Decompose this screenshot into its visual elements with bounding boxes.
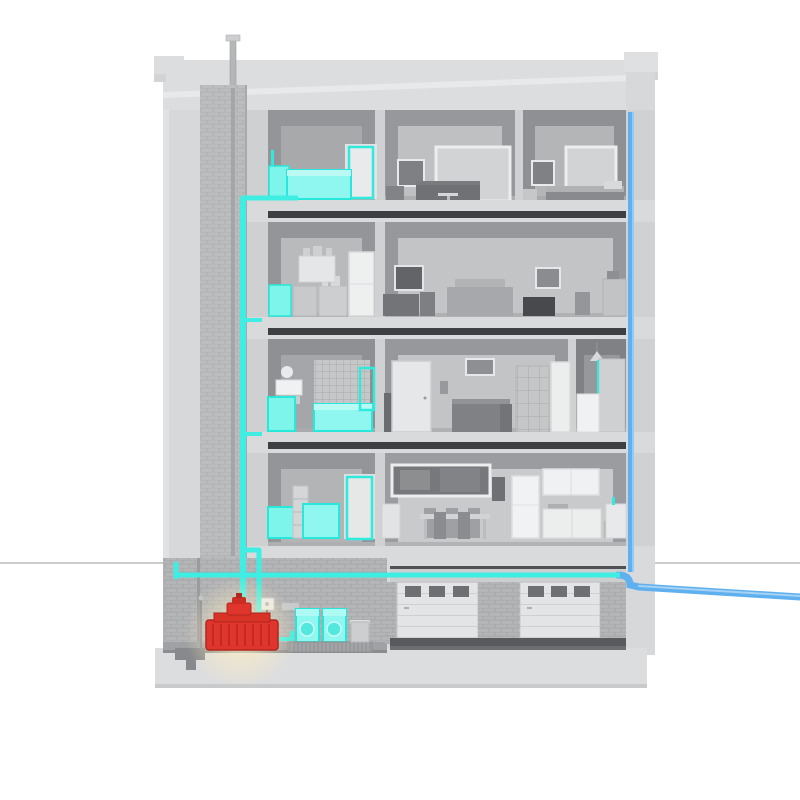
- f1-mural-patch-2: [440, 468, 480, 492]
- f2-armchair-cyan: [268, 397, 295, 431]
- f2-wall-lamp: [440, 381, 448, 394]
- f1-cooktop: [548, 504, 568, 509]
- parapet-left-step: [154, 74, 166, 82]
- parapet-left: [154, 56, 184, 74]
- f1-tap: [612, 497, 615, 505]
- garage-door-2-window-3: [574, 586, 590, 597]
- f1-mural-patch-1: [400, 470, 430, 490]
- f1-chair-front-1: [434, 512, 446, 539]
- ground-line-right: [646, 562, 800, 564]
- vent-pipe: [230, 40, 236, 88]
- machine-platform: [288, 642, 372, 652]
- garage-door-1-window-1: [405, 586, 421, 597]
- f1-shower: [347, 477, 372, 539]
- f2-door-knob: [424, 397, 427, 400]
- f2-lamp-ball: [281, 366, 293, 378]
- f1-vanity: [303, 504, 339, 538]
- f2-door: [392, 361, 431, 432]
- f3-sideboard: [523, 297, 555, 316]
- f3-sofa: [447, 287, 513, 316]
- vent-pipe-inside-shaft: [231, 88, 235, 556]
- pump-body: [206, 620, 278, 650]
- garage-pillar-mid: [478, 582, 520, 644]
- garage-door-1-window-3: [453, 586, 469, 597]
- washing-machine-1-door: [300, 622, 314, 636]
- f2-fridge: [577, 394, 599, 432]
- parapet-right: [624, 52, 658, 72]
- vent-pipe-cap: [226, 35, 240, 41]
- f2-tv: [276, 380, 302, 395]
- slab-4-recess: [268, 211, 626, 218]
- f4-bathtub-rim: [287, 170, 351, 176]
- washing-machine-2-panel: [323, 609, 346, 616]
- f3-jar-top-3: [326, 248, 332, 256]
- layer-lifting-station: [185, 577, 297, 689]
- f3-tv-desk: [383, 294, 419, 316]
- f2-bookshelf: [516, 366, 549, 432]
- building-cutaway-illustration: [0, 0, 800, 800]
- f1-chair-front-2: [458, 512, 470, 539]
- f2-wardrobe: [551, 362, 570, 432]
- garage-door-2-handle: [527, 607, 532, 609]
- washing-machine-1-panel: [296, 609, 319, 616]
- f1-drawers: [382, 504, 400, 538]
- f1-fridge: [512, 476, 539, 538]
- f4-table-top: [438, 193, 458, 196]
- f3-cart: [603, 279, 626, 316]
- f3-picture: [536, 268, 560, 288]
- f3-cabinet-2: [319, 286, 347, 316]
- garage-door-1-window-2: [429, 586, 445, 597]
- screenshot-canvas: [0, 0, 800, 800]
- f3-cabinet-1: [293, 286, 317, 316]
- garage-door-1-handle: [404, 607, 409, 609]
- f3-cart-item: [607, 271, 619, 279]
- f1-sink-unit: [606, 504, 626, 538]
- ground-line-left: [0, 562, 163, 564]
- f3-sofa-back: [455, 279, 505, 288]
- f3-tv: [395, 266, 423, 290]
- pump-dome: [227, 603, 251, 615]
- f4-bedroom-picture: [532, 161, 554, 185]
- shaft-wall-f3: [247, 222, 268, 317]
- room-f1-dining-floor: [385, 542, 626, 546]
- f4-faucet: [271, 150, 274, 166]
- f2-kitchen-cabinet: [599, 359, 625, 432]
- f1-wall-lamp: [492, 477, 505, 501]
- slab-3-recess: [268, 328, 626, 335]
- f2-picture: [466, 359, 494, 375]
- f4-shower-door: [349, 147, 373, 198]
- pump-knob: [236, 593, 242, 598]
- garage-pillar-left: [385, 582, 397, 644]
- f3-chair: [575, 292, 590, 315]
- f1-chair-back-2: [446, 508, 458, 538]
- garage-door-2-window-1: [528, 586, 544, 597]
- f1-toilet: [268, 507, 295, 538]
- garage-floor-edge: [390, 646, 626, 650]
- shaft-wall-f2: [247, 339, 268, 432]
- f3-desk-chair: [420, 292, 435, 316]
- shaft-wall-f4: [247, 110, 268, 200]
- f3-jar-top-2: [313, 246, 322, 256]
- ground-slab-recess: [390, 566, 626, 569]
- f1-table-leg-1: [424, 519, 427, 539]
- f3-wall-cabinet: [299, 256, 335, 282]
- f4-pillow: [604, 181, 622, 189]
- shaft-wall-f1: [247, 453, 268, 546]
- f2-chair: [500, 404, 512, 432]
- f3-jar-top-1: [303, 248, 310, 256]
- washing-machine-2-door: [327, 622, 341, 636]
- f1-table-leg-2: [483, 519, 486, 539]
- brick-shaft: [200, 85, 247, 558]
- pump-cap: [232, 597, 246, 604]
- garage-door-2-window-2: [551, 586, 567, 597]
- garage-pillar-right: [600, 582, 626, 644]
- room-f1-bathroom-floor: [268, 542, 375, 546]
- f2-desk-top: [452, 399, 510, 404]
- bucket: [351, 622, 369, 642]
- f1-table: [420, 514, 490, 519]
- f3-dishwasher: [269, 285, 291, 316]
- slab-2-recess: [268, 442, 626, 449]
